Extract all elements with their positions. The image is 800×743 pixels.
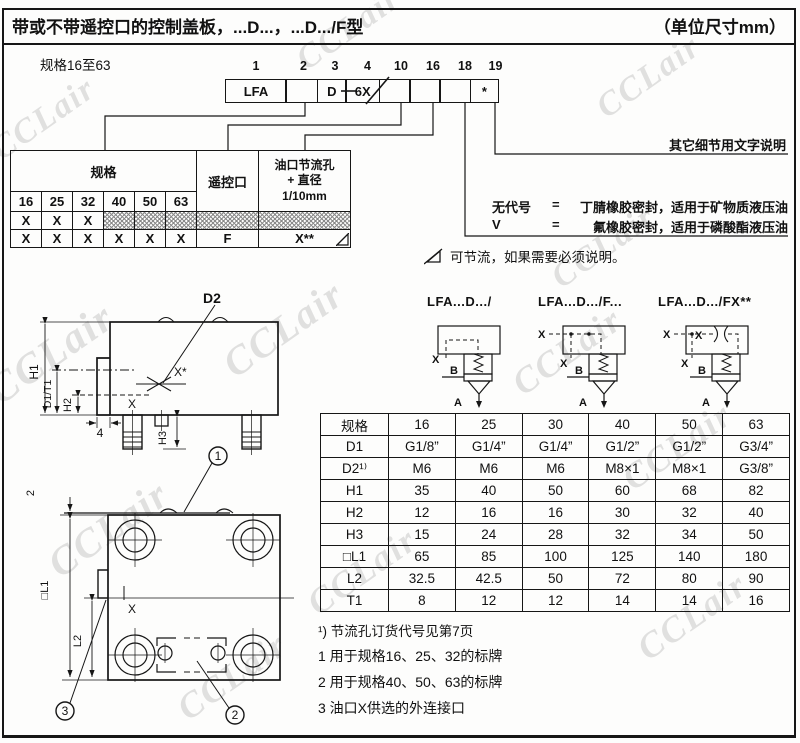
avail-cell: X <box>166 230 197 248</box>
dim-4-label: 4 <box>97 426 104 440</box>
dim-cell: 42.5 <box>455 568 522 590</box>
size-col: 25 <box>455 414 522 436</box>
b-label: B <box>575 365 583 377</box>
dim-cell: 82 <box>723 480 790 502</box>
order-box-model: LFA <box>225 79 287 103</box>
note-2: 2 用于规格40、50、63的标牌 <box>318 672 502 692</box>
size-cell: 63 <box>166 192 197 212</box>
x-label: X <box>681 358 689 370</box>
dim-cell: 16 <box>522 502 589 524</box>
l1-dim-label: □L1 <box>39 581 51 600</box>
dim-cell: 72 <box>589 568 656 590</box>
table-row: □L1 65 85 100 125 140 180 <box>321 546 790 568</box>
seal-desc: 丁腈橡胶密封，适用于矿物质液压油 <box>568 197 788 216</box>
catalog-page: CCLair CCLair CCLair CCLair CCLair CCLai… <box>0 0 800 743</box>
dim-cell: 14 <box>589 590 656 612</box>
avail-cell: X <box>73 230 104 248</box>
size-col: 63 <box>723 414 790 436</box>
avail-cell: X <box>104 230 135 248</box>
callout-1: 1 <box>215 449 222 463</box>
dim-cell: G1/2” <box>656 436 723 458</box>
seal-option-row: 无代号 = 丁腈橡胶密封，适用于矿物质液压油 <box>492 197 788 216</box>
symbol-label-3: LFA...D.../FX** <box>658 294 751 309</box>
dim-cell: 50 <box>522 568 589 590</box>
h2-dim-label: H2 <box>62 398 74 412</box>
b-label: B <box>450 365 458 377</box>
dim-cell: 60 <box>589 480 656 502</box>
dim-cell: 100 <box>522 546 589 568</box>
row-label: T1 <box>321 590 389 612</box>
order-pos: 3 <box>320 59 350 73</box>
equals-sign: = <box>552 217 568 236</box>
size-cell: 16 <box>11 192 42 212</box>
selector-table: 规格 遥控口 油口节流孔 + 直径 1/10mm 16 25 32 40 50 … <box>10 150 351 248</box>
dim-cell: G1/4” <box>455 436 522 458</box>
dim-cell: 40 <box>455 480 522 502</box>
dim-cell: 40 <box>723 502 790 524</box>
dim-cell: 140 <box>656 546 723 568</box>
avail-cell: X <box>42 230 73 248</box>
dim-cell: 12 <box>455 590 522 612</box>
dim-cell: 68 <box>656 480 723 502</box>
dim-cell: 30 <box>589 502 656 524</box>
orifice-value-cell: X** <box>259 230 351 248</box>
dim-cell: G3/4” <box>723 436 790 458</box>
dim-cell: 14 <box>656 590 723 612</box>
dim-cell: 28 <box>522 524 589 546</box>
x-label: X <box>432 354 440 366</box>
dim-cell: 50 <box>522 480 589 502</box>
order-box-size <box>285 79 318 103</box>
order-code-positions: 1 2 3 4 10 16 18 19 <box>225 59 510 73</box>
x-label: X <box>560 358 568 370</box>
drawing-labels: D2 X* X H1 D1/T1 H2 H3 4 1 2 □L1 L2 X 3 … <box>25 290 239 722</box>
throttle-triangle-icon <box>336 233 349 246</box>
avail-cell: X <box>42 212 73 230</box>
seal-code: 无代号 <box>492 197 552 216</box>
dim-cell: G1/8” <box>389 436 456 458</box>
order-pos: 2 <box>287 59 320 73</box>
dim-cell: M6 <box>389 458 456 480</box>
order-box-star: * <box>470 79 499 103</box>
hatched-cell <box>259 212 351 230</box>
symbol-1 <box>438 326 500 408</box>
order-box-type: D <box>317 79 347 103</box>
order-code-boxes: LFA D 6X * <box>225 79 497 103</box>
row-label: □L1 <box>321 546 389 568</box>
size-range-label: 规格16至63 <box>40 54 111 74</box>
dim-cell: 8 <box>389 590 456 612</box>
table-row: D2¹⁾ M6 M6 M6 M8×1 M8×1 G3/8” <box>321 458 790 480</box>
dim-cell: 32 <box>656 502 723 524</box>
callout-3: 3 <box>62 704 69 718</box>
throttle-triangle-icon <box>424 248 443 265</box>
table-row: L2 32.5 42.5 50 72 80 90 <box>321 568 790 590</box>
dim-cell: 16 <box>723 590 790 612</box>
dim-cell: G1/2” <box>589 436 656 458</box>
order-box-18 <box>439 79 471 103</box>
b-label: B <box>698 365 706 377</box>
hatched-cell <box>135 212 166 230</box>
order-box-16 <box>409 79 441 103</box>
orifice-value: X** <box>295 231 314 246</box>
dim-cell: 65 <box>389 546 456 568</box>
dim-cell: 12 <box>389 502 456 524</box>
dim-cell: 32 <box>589 524 656 546</box>
dim-cell: M8×1 <box>589 458 656 480</box>
equals-sign: = <box>552 197 568 216</box>
row-label: H2 <box>321 502 389 524</box>
d2-label: D2 <box>203 290 221 306</box>
dim-cell: M8×1 <box>656 458 723 480</box>
dim-cell: 80 <box>656 568 723 590</box>
remote-port-header: 遥控口 <box>197 151 259 212</box>
table-row: H1 35 40 50 60 68 82 <box>321 480 790 502</box>
size-cell: 32 <box>73 192 104 212</box>
order-pos: 16 <box>417 59 449 73</box>
dim-cell: 16 <box>455 502 522 524</box>
order-pos: 1 <box>225 59 287 73</box>
size-header: 规格 <box>11 151 197 192</box>
title-bar: 带或不带遥控口的控制盖板，...D...，...D.../F型 （单位尺寸mm） <box>2 8 796 45</box>
orifice-header-line3: 1/10mm <box>259 189 350 205</box>
seal-desc: 氟橡胶密封，适用于磷酸酯液压油 <box>568 217 788 236</box>
size-col: 30 <box>522 414 589 436</box>
table-row: T1 8 12 12 14 14 16 <box>321 590 790 612</box>
orifice-footnote: ¹) 节流孔订货代号见第7页 <box>318 620 473 640</box>
table-row: 规格 16 25 30 40 50 63 <box>321 414 790 436</box>
row-label: D1 <box>321 436 389 458</box>
orifice-header-line1: 油口节流孔 <box>259 158 350 174</box>
order-box-series: 6X <box>345 79 380 103</box>
size-cell: 40 <box>104 192 135 212</box>
size-col: 50 <box>656 414 723 436</box>
dim-cell: 90 <box>723 568 790 590</box>
hatched-cell <box>104 212 135 230</box>
side-view-drawing <box>40 305 278 512</box>
dim-cell: G3/8” <box>723 458 790 480</box>
detail-note: 其它细节用文字说明 <box>669 135 786 154</box>
table-row: D1 G1/8” G1/4” G1/4” G1/2” G1/2” G3/4” <box>321 436 790 458</box>
dim-cell: 34 <box>656 524 723 546</box>
row-label: H1 <box>321 480 389 502</box>
h1-dim-label: H1 <box>27 364 41 380</box>
dim-cell: 85 <box>455 546 522 568</box>
dim-cell: 32.5 <box>389 568 456 590</box>
callout-2: 2 <box>232 708 239 722</box>
a-label: A <box>579 397 587 409</box>
dim-cell: 125 <box>589 546 656 568</box>
units-label: （单位尺寸mm） <box>654 13 786 38</box>
size-col: 40 <box>589 414 656 436</box>
dim-cell: 24 <box>455 524 522 546</box>
dim-cell: 50 <box>723 524 790 546</box>
dimension-table: 规格 16 25 30 40 50 63 D1 G1/8” G1/4” G1/4… <box>320 413 790 612</box>
hatched-cell <box>166 212 197 230</box>
top-view-drawing <box>56 497 294 724</box>
table-row: H3 15 24 28 32 34 50 <box>321 524 790 546</box>
dim-2-label: 2 <box>25 490 37 496</box>
throttle-note: 可节流，如果需要必须说明。 <box>424 246 626 266</box>
order-pos: 19 <box>481 59 510 73</box>
order-pos: 4 <box>350 59 385 73</box>
orifice-header-line2: + 直径 <box>259 173 350 189</box>
row-label: L2 <box>321 568 389 590</box>
dim-cell: M6 <box>455 458 522 480</box>
size-cell: 25 <box>42 192 73 212</box>
throttle-note-text: 可节流，如果需要必须说明。 <box>450 246 626 266</box>
size-col: 16 <box>389 414 456 436</box>
dim-cell: M6 <box>522 458 589 480</box>
symbol-label-2: LFA...D.../F... <box>538 294 622 309</box>
order-box-10 <box>379 79 411 103</box>
seal-code: V <box>492 217 552 236</box>
x-label: X <box>663 329 671 341</box>
x-star-label: X* <box>174 365 187 379</box>
order-pos: 18 <box>449 59 481 73</box>
dim-cell: G1/4” <box>522 436 589 458</box>
a-label: A <box>702 397 710 409</box>
page-title: 带或不带遥控口的控制盖板，...D...，...D.../F型 <box>12 13 363 38</box>
x-label: X <box>538 329 546 341</box>
hatched-cell <box>197 212 259 230</box>
x-port-label-side: X <box>128 397 136 411</box>
note-3: 3 油口X供选的外连接口 <box>318 698 465 718</box>
l2-dim-label: L2 <box>72 635 84 647</box>
avail-cell: X <box>73 212 104 230</box>
x-port-label-top: X <box>128 602 136 616</box>
order-pos: 10 <box>385 59 417 73</box>
remote-value-cell: F <box>197 230 259 248</box>
size-cell: 50 <box>135 192 166 212</box>
avail-cell: X <box>11 230 42 248</box>
avail-cell: X <box>11 212 42 230</box>
row-label: D2¹⁾ <box>321 458 389 480</box>
dim-cell: 12 <box>522 590 589 612</box>
a-label: A <box>454 397 462 409</box>
avail-cell: X <box>135 230 166 248</box>
seal-option-row: V = 氟橡胶密封，适用于磷酸酯液压油 <box>492 217 788 236</box>
h3-dim-label: H3 <box>157 431 169 445</box>
dim-cell: 35 <box>389 480 456 502</box>
dim-cell: 15 <box>389 524 456 546</box>
x-label: X <box>695 330 703 342</box>
symbol-label-1: LFA...D.../ <box>427 294 492 309</box>
table-row: H2 12 16 16 30 32 40 <box>321 502 790 524</box>
orifice-header: 油口节流孔 + 直径 1/10mm <box>259 151 351 212</box>
row-label: 规格 <box>321 414 389 436</box>
dim-cell: 180 <box>723 546 790 568</box>
note-1: 1 用于规格16、25、32的标牌 <box>318 646 502 666</box>
row-label: H3 <box>321 524 389 546</box>
d1t1-dim-label: D1/T1 <box>42 380 54 409</box>
